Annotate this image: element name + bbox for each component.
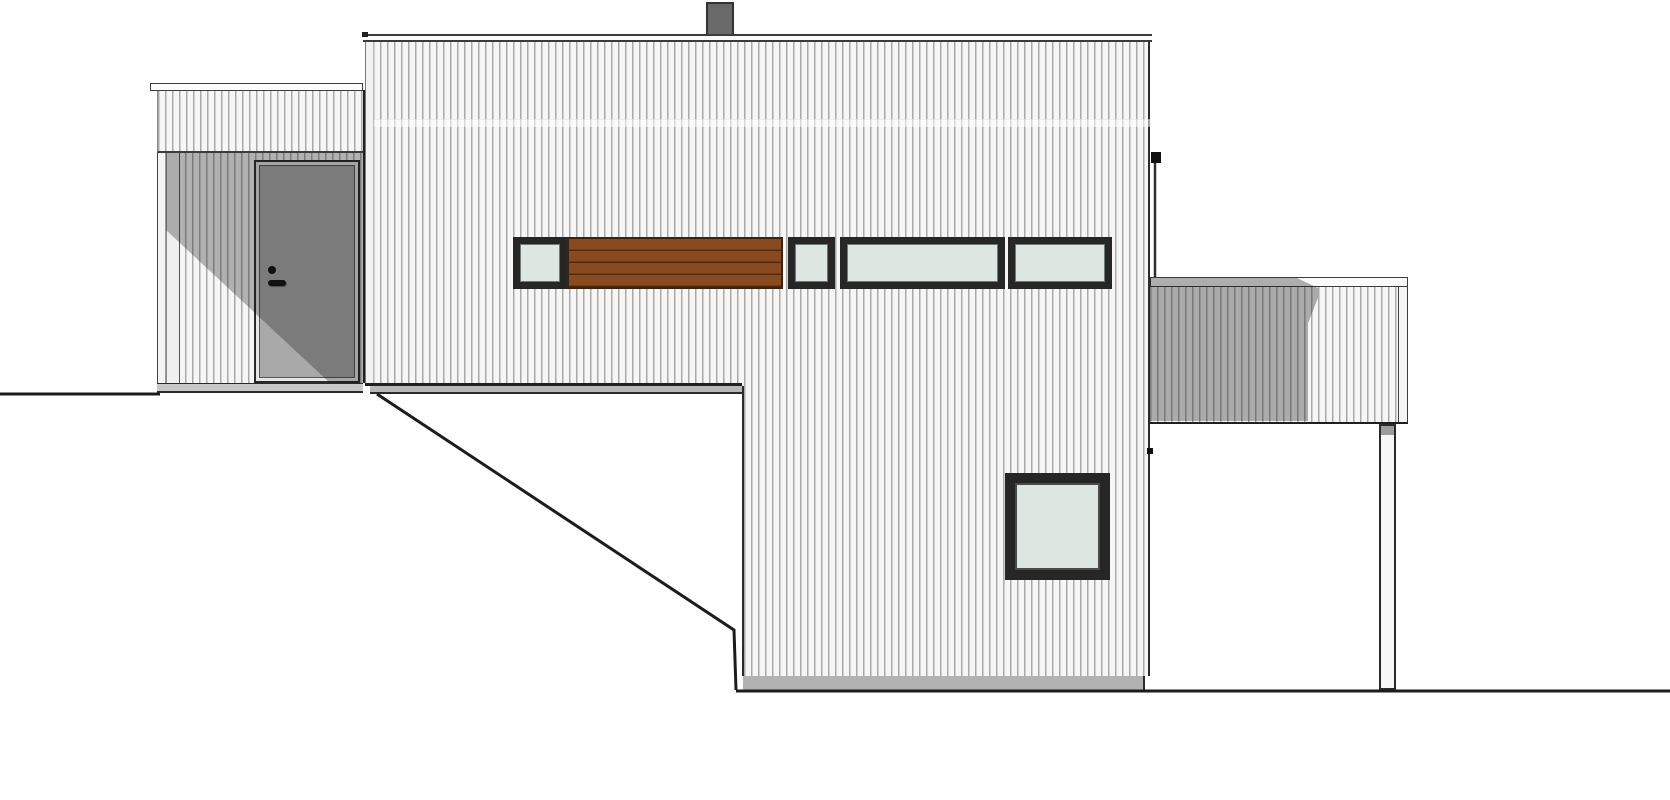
wide-window-1 (840, 237, 1005, 289)
porch-parapet (157, 90, 363, 153)
door-panel (259, 165, 355, 378)
door-knob (268, 266, 276, 274)
deck-right-trim (1398, 287, 1408, 423)
square-window-glass (1017, 485, 1098, 568)
entry-door (254, 160, 360, 383)
main-house-upper-wall (365, 41, 1150, 386)
porch-sill (157, 383, 363, 393)
downspout-bracket-top (1151, 152, 1161, 163)
porch-fascia (150, 83, 363, 91)
deck-bottom-edge (1150, 422, 1408, 424)
small-window-2-glass (795, 244, 828, 282)
deck-railing (1150, 287, 1398, 423)
square-window-sash (1015, 483, 1100, 570)
elevation-drawing (0, 0, 1670, 800)
square-window (1005, 473, 1110, 580)
wide-window-2 (1008, 237, 1112, 289)
door-frame (256, 162, 358, 381)
deck-support-post (1379, 424, 1396, 690)
door-handle (268, 280, 286, 286)
porch-post (166, 153, 180, 383)
post-cap (1381, 426, 1394, 435)
wide-window-1-glass (847, 244, 998, 282)
roof-fascia-left-tick (362, 32, 368, 37)
small-window-2 (788, 237, 835, 289)
wood-slat-panel (567, 237, 783, 289)
small-window-1 (513, 237, 567, 289)
roof-fascia (363, 34, 1152, 42)
corner-trim (365, 41, 374, 386)
terrain-slope-line (377, 394, 736, 690)
wide-window-2-glass (1015, 244, 1105, 282)
foundation-strip (743, 676, 1145, 690)
porch-left-edge-board (157, 153, 166, 383)
chimney (706, 2, 734, 36)
siding-joint-line (365, 119, 1150, 127)
deck-top-rail (1150, 277, 1408, 287)
small-window-1-glass (520, 244, 560, 282)
soffit-strip (370, 386, 742, 394)
